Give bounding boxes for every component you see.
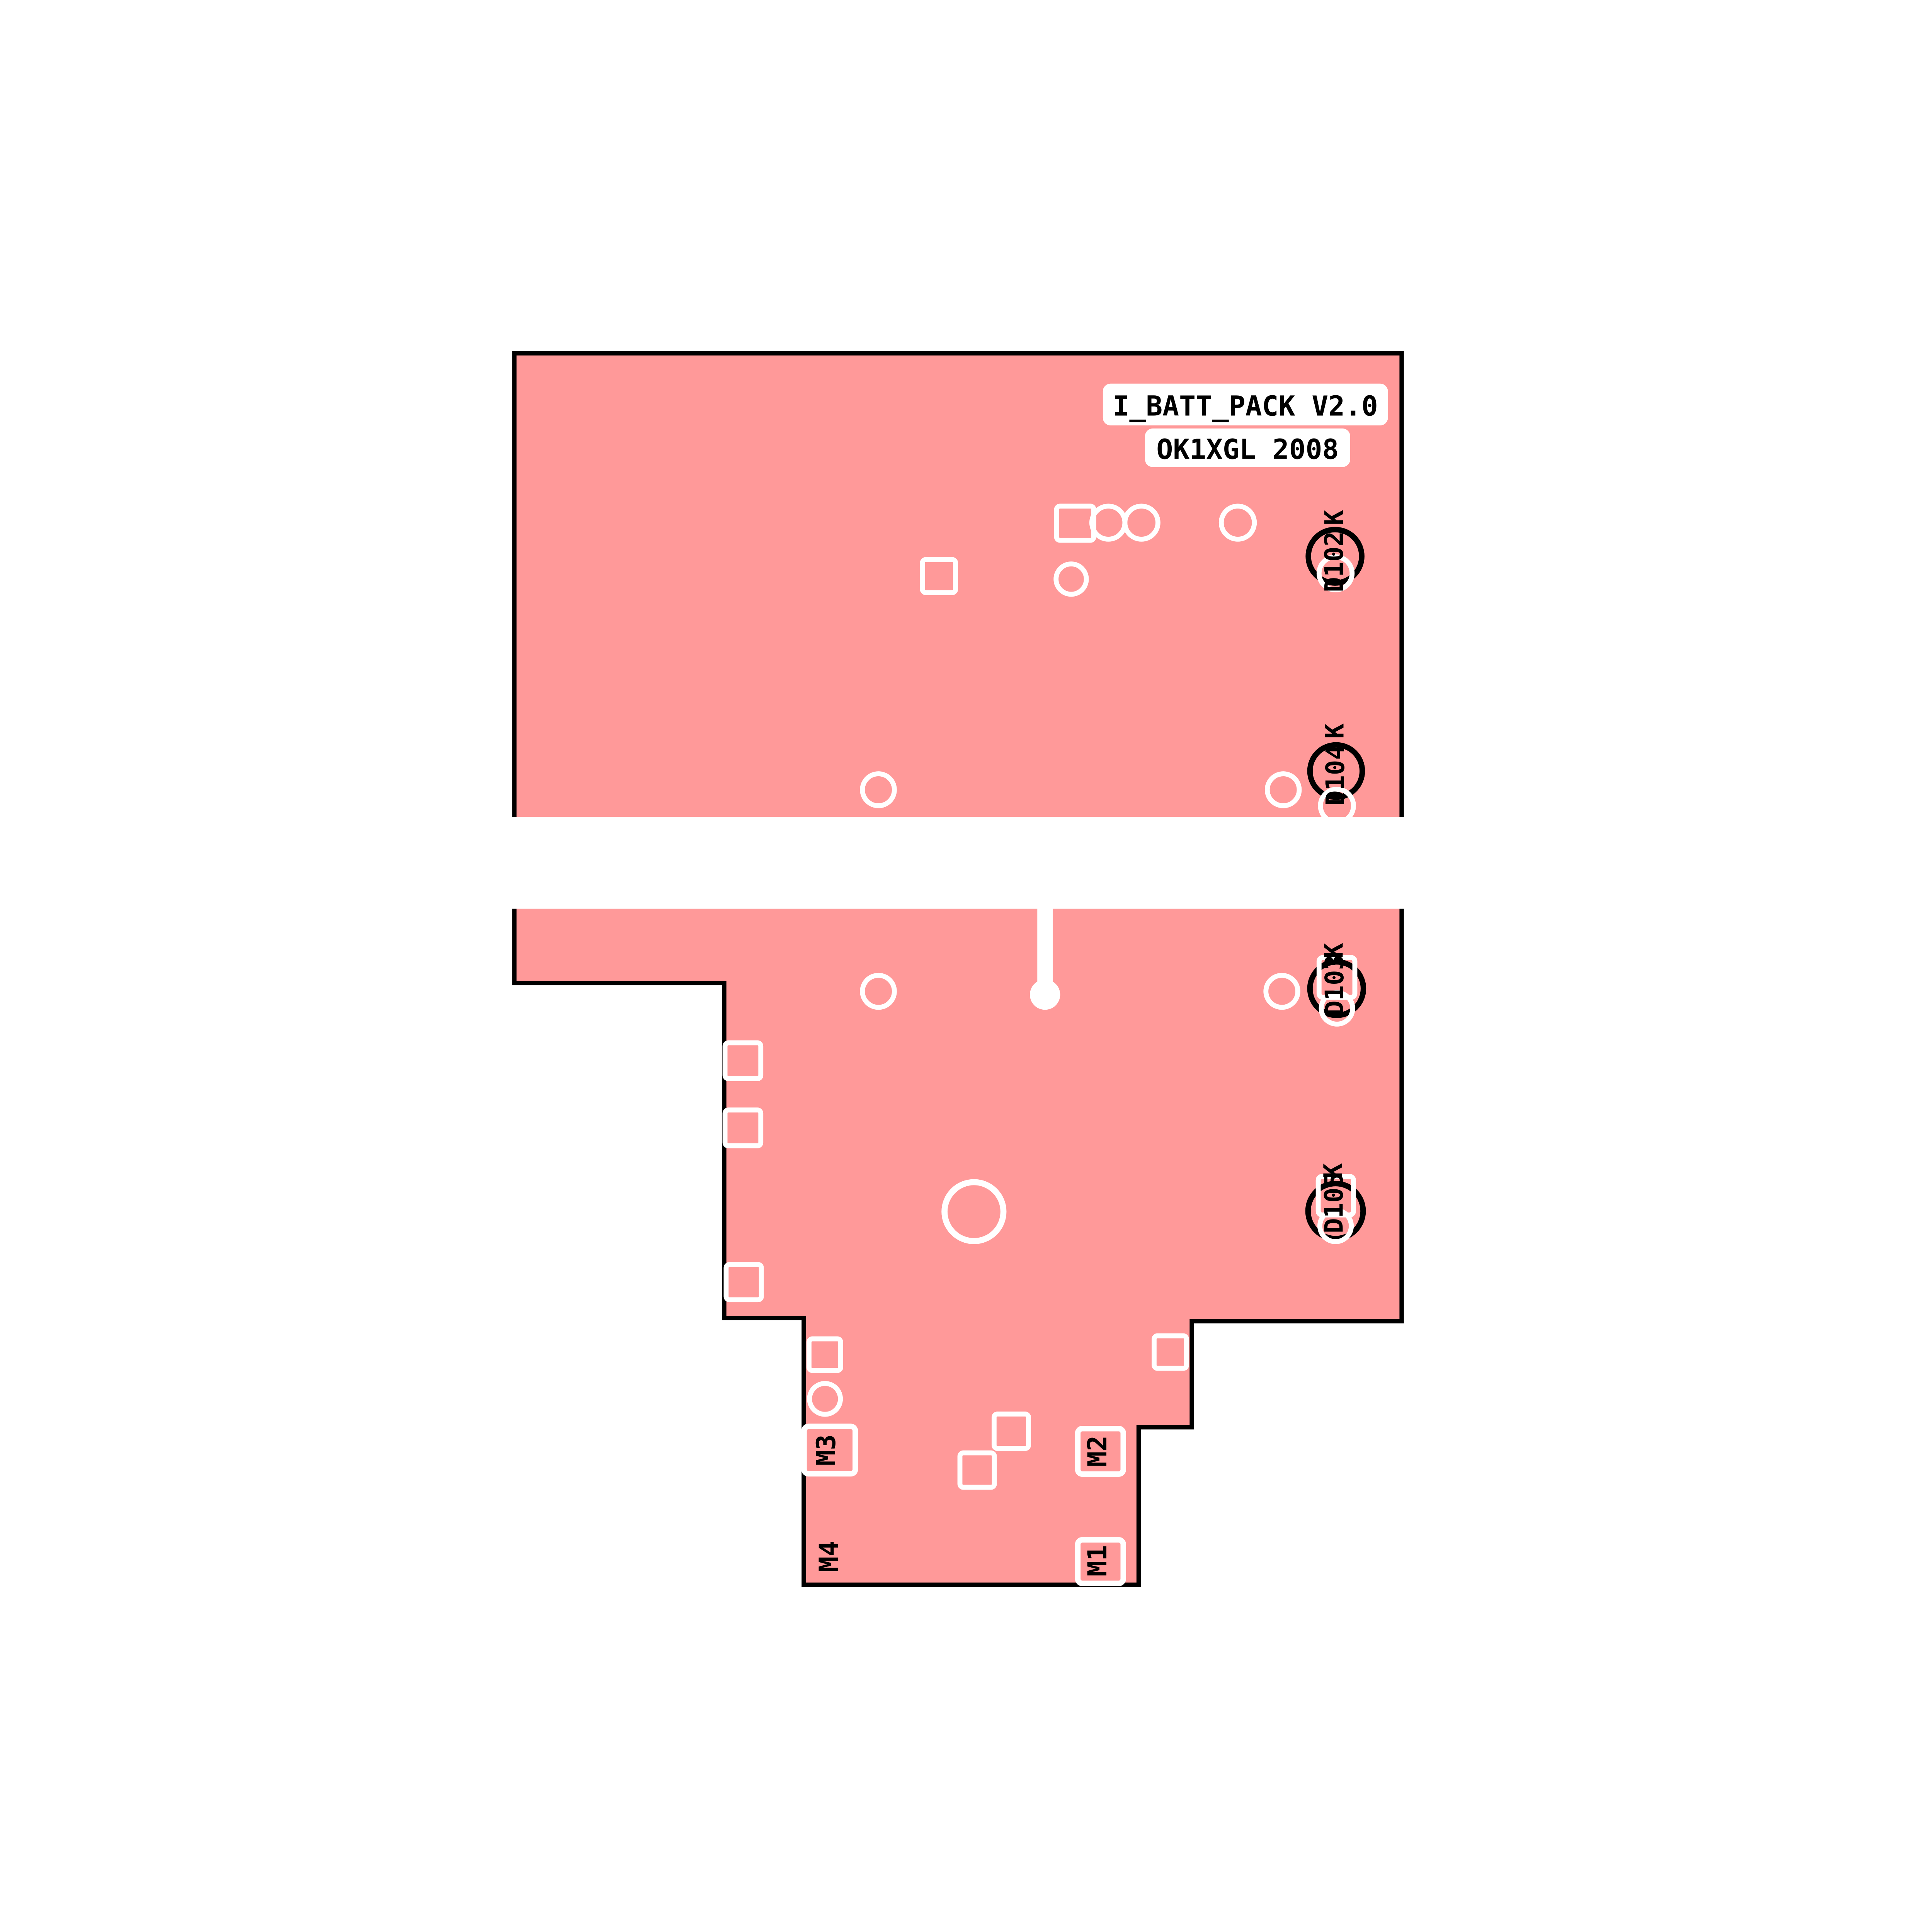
isolation-band (508, 817, 1409, 908)
mount-pad-label: M2 (1082, 1435, 1113, 1467)
diode-ref-label: D102 (1320, 531, 1349, 592)
mount-pad-label: M4 (813, 1541, 844, 1572)
cathode-k-mark: K (1319, 943, 1349, 958)
title-line-1: I_BATT_PACK V2.0 (1113, 390, 1378, 422)
title-line-2: OK1XGL 2008 (1156, 434, 1339, 466)
pcb-copper-layer-image: D102KD104KD103KD105KM3M2M1M4I_BATT_PACK … (0, 0, 1916, 1932)
thermal-slot-bulb (1030, 980, 1060, 1010)
mount-pad-label: M3 (811, 1434, 841, 1466)
mount-pad-m4: M4 (813, 1541, 844, 1572)
cathode-k-mark: K (1320, 510, 1349, 526)
diode-ref-label: D103 (1320, 955, 1349, 1016)
diode-ref-label: D104 (1321, 745, 1350, 806)
cathode-k-mark: K (1320, 723, 1350, 739)
pcb-layout-page: D102KD104KD103KD105KM3M2M1M4I_BATT_PACK … (0, 0, 1916, 1932)
mount-pad-label: M1 (1082, 1545, 1113, 1577)
diode-ref-label: D105 (1319, 1172, 1349, 1233)
cathode-k-mark: K (1319, 1163, 1348, 1179)
thermal-slot (1037, 906, 1053, 986)
title-block: I_BATT_PACK V2.0OK1XGL 2008 (1103, 384, 1388, 467)
